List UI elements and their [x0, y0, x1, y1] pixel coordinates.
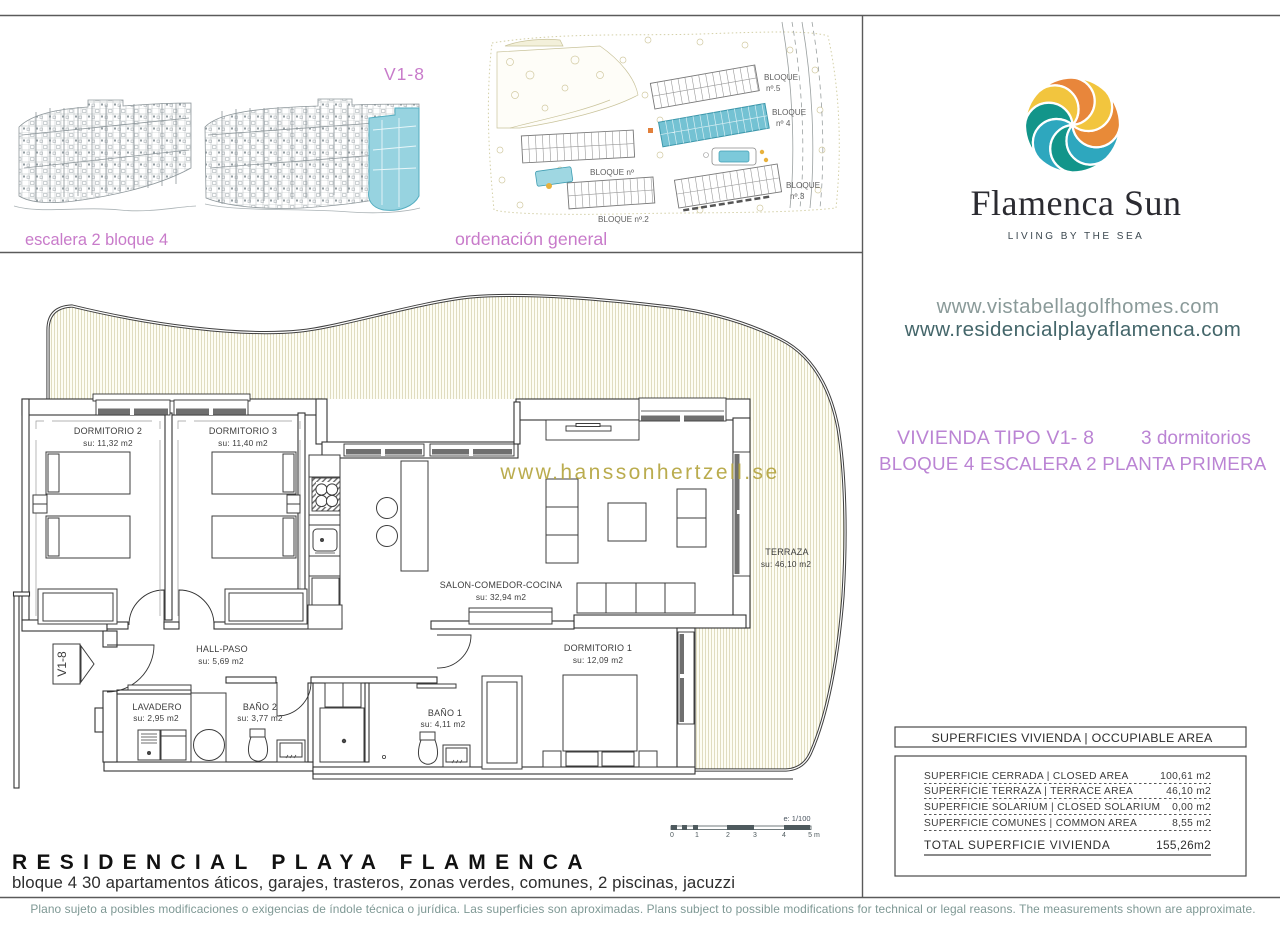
- svg-text:SUPERFICIE CERRADA | CLOSED: SUPERFICIE CERRADA | CLOSED AREA: [924, 771, 1129, 782]
- svg-text:8,55 m2: 8,55 m2: [1172, 818, 1211, 829]
- svg-text:BLOQUE nº.2: BLOQUE nº.2: [598, 215, 649, 224]
- svg-text:su: 11,40 m2: su: 11,40 m2: [218, 438, 268, 448]
- svg-text:ordenación general: ordenación general: [455, 229, 607, 249]
- svg-text:BLOQUE: BLOQUE: [772, 108, 807, 117]
- svg-text:su: 12,09 m2: su: 12,09 m2: [573, 655, 624, 665]
- svg-text:su: 2,95 m2: su: 2,95 m2: [133, 713, 179, 723]
- svg-text:LAVADERO: LAVADERO: [132, 702, 181, 712]
- svg-text:SUPERFICIES VIVIENDA | OCCUPIA: SUPERFICIES VIVIENDA | OCCUPIABLE AREA: [931, 731, 1213, 745]
- svg-text:su: 46,10 m2: su: 46,10 m2: [761, 559, 812, 569]
- svg-text:0: 0: [670, 832, 674, 839]
- svg-text:BLOQUE: BLOQUE: [786, 181, 821, 190]
- svg-text:e: 1/100: e: 1/100: [783, 814, 810, 823]
- svg-text:0,00 m2: 0,00 m2: [1172, 802, 1211, 813]
- svg-text:nº.3: nº.3: [790, 192, 805, 201]
- svg-text:www.vistabellagolfhomes.com: www.vistabellagolfhomes.com: [936, 296, 1220, 318]
- svg-text:SALON-COMEDOR-COCINA: SALON-COMEDOR-COCINA: [440, 580, 563, 590]
- svg-text:V1-8: V1-8: [55, 651, 69, 677]
- svg-text:5 m: 5 m: [808, 832, 820, 839]
- svg-text:HALL-PASO: HALL-PASO: [196, 644, 248, 654]
- svg-text:TOTAL SUPERFICIE VIVIENDA: TOTAL SUPERFICIE VIVIENDA: [924, 838, 1110, 852]
- svg-text:su: 11,32 m2: su: 11,32 m2: [83, 438, 133, 448]
- svg-text:su: 3,77 m2: su: 3,77 m2: [237, 713, 283, 723]
- svg-text:RESIDENCIAL PLAYA FLAMENCA: RESIDENCIAL PLAYA FLAMENCA: [12, 851, 592, 874]
- svg-text:nº.5: nº.5: [766, 84, 781, 93]
- svg-text:155,26m2: 155,26m2: [1156, 838, 1211, 852]
- svg-text:DORMITORIO 2: DORMITORIO 2: [74, 426, 142, 436]
- svg-text:BLOQUE: BLOQUE: [764, 73, 799, 82]
- svg-text:BAÑO 2: BAÑO 2: [243, 702, 277, 712]
- svg-text:DORMITORIO 3: DORMITORIO 3: [209, 426, 277, 436]
- svg-text:Plano sujeto a posibles modifi: Plano sujeto a posibles modificaciones o…: [30, 902, 1255, 916]
- svg-text:VIVIENDA TIPO V1- 8: VIVIENDA TIPO V1- 8: [897, 427, 1094, 449]
- svg-text:V1-8: V1-8: [384, 64, 425, 84]
- svg-text:su: 32,94 m2: su: 32,94 m2: [476, 592, 527, 602]
- svg-text:1: 1: [695, 832, 699, 839]
- svg-text:BLOQUE nº: BLOQUE nº: [590, 168, 634, 177]
- svg-text:BLOQUE 4 ESCALERA 2 PLANTA: BLOQUE 4 ESCALERA 2 PLANTA PRIMERA: [879, 453, 1267, 474]
- svg-text:BAÑO 1: BAÑO 1: [428, 708, 462, 718]
- svg-text:SUPERFICIE TERRAZA | TERRA: SUPERFICIE TERRAZA | TERRACE AREA: [924, 786, 1133, 797]
- svg-text:3 dormitorios: 3 dormitorios: [1141, 428, 1251, 449]
- svg-text:3: 3: [753, 832, 757, 839]
- svg-text:SUPERFICIE SOLARIUM | CLOSED: SUPERFICIE SOLARIUM | CLOSED SOLARIUM: [924, 802, 1160, 813]
- svg-text:su: 5,69 m2: su: 5,69 m2: [198, 656, 244, 666]
- svg-text:Flamenca Sun: Flamenca Sun: [971, 183, 1182, 223]
- svg-text:LIVING BY THE SEA: LIVING BY THE SEA: [1008, 231, 1145, 242]
- svg-text:46,10 m2: 46,10 m2: [1166, 786, 1211, 797]
- svg-text:su: 4,11 m2: su: 4,11 m2: [421, 719, 466, 729]
- svg-text:DORMITORIO 1: DORMITORIO 1: [564, 643, 632, 653]
- svg-text:nº 4: nº 4: [776, 119, 791, 128]
- svg-text:bloque 4 30 apartamentos ático: bloque 4 30 apartamentos áticos, garajes…: [12, 873, 735, 892]
- svg-text:2: 2: [726, 832, 730, 839]
- svg-text:escalera 2 bloque 4: escalera 2 bloque 4: [25, 231, 168, 249]
- svg-text:4: 4: [782, 832, 786, 839]
- svg-text:TERRAZA: TERRAZA: [765, 547, 808, 557]
- svg-text:www.hanssonhertzell.se: www.hanssonhertzell.se: [499, 461, 779, 484]
- svg-text:100,61 m2: 100,61 m2: [1160, 771, 1211, 782]
- svg-text:SUPERFICIE COMUNES | COMMON: SUPERFICIE COMUNES | COMMON AREA: [924, 818, 1137, 829]
- svg-text:www.residencialplayaflamenca.c: www.residencialplayaflamenca.com: [904, 318, 1241, 341]
